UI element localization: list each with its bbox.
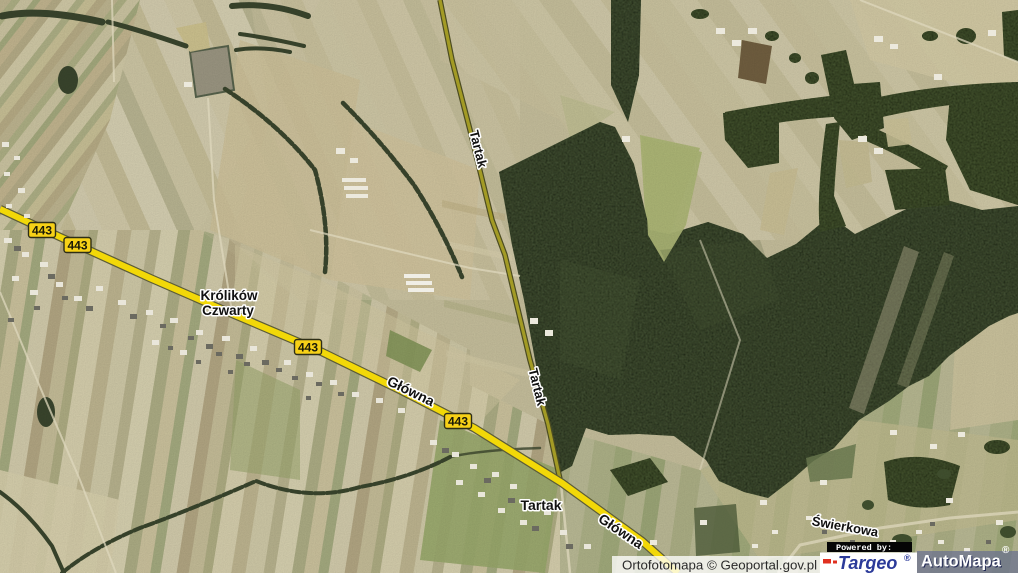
svg-text:Targeo: Targeo <box>838 553 897 573</box>
svg-text:443: 443 <box>67 239 87 253</box>
svg-text:443: 443 <box>32 224 52 238</box>
svg-text:®: ® <box>1002 545 1010 556</box>
svg-text:Królików: Królików <box>200 288 258 303</box>
svg-text:443: 443 <box>448 415 468 429</box>
svg-text:Ortofotomapa © Geoportal.gov.p: Ortofotomapa © Geoportal.gov.pl <box>622 558 817 573</box>
svg-text:®: ® <box>904 553 911 563</box>
svg-text:AutoMapa: AutoMapa <box>921 553 1002 571</box>
svg-text:Tartak: Tartak <box>521 497 562 513</box>
svg-text:443: 443 <box>298 341 318 355</box>
svg-text:Czwarty: Czwarty <box>202 303 254 318</box>
svg-text:Powered by:: Powered by: <box>836 543 892 553</box>
